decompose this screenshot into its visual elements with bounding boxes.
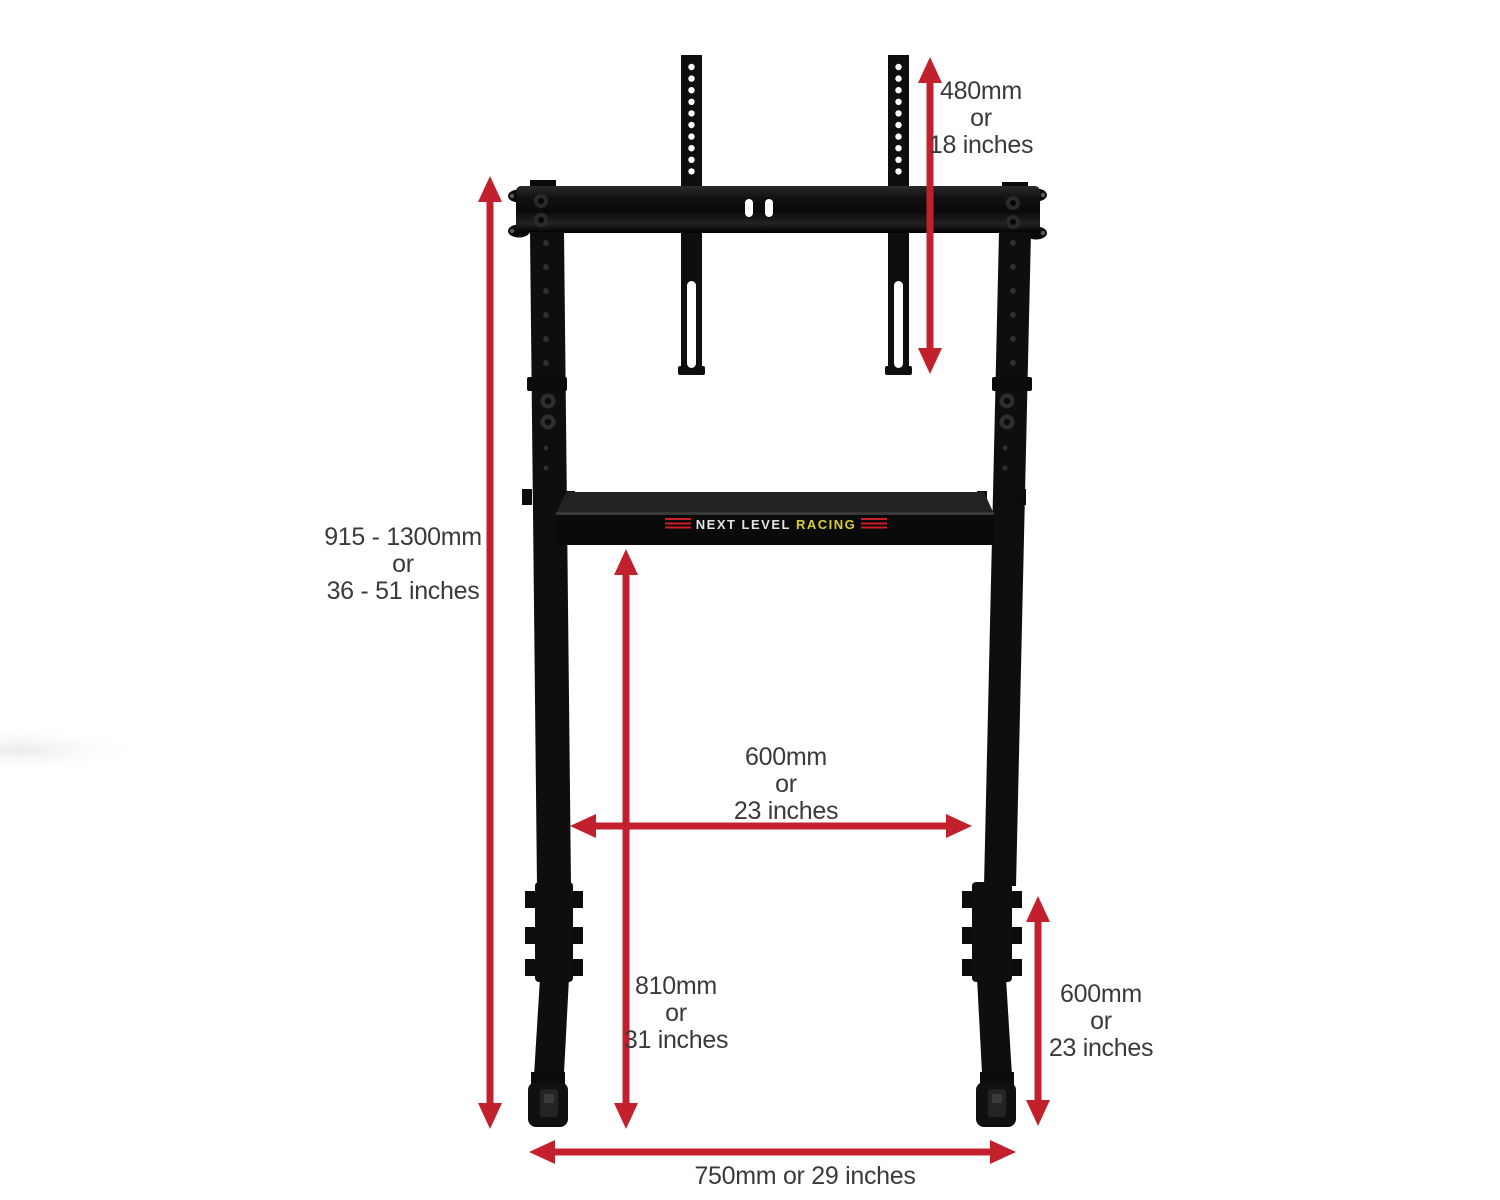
dimension-or: or (1049, 1008, 1153, 1035)
dimension-value: 600mm (734, 744, 838, 771)
dimension-value-inches: 36 - 51 inches (324, 578, 482, 605)
dimension-value: 810mm (624, 973, 728, 1000)
product-dimension-diagram: NEXT LEVEL RACING (0, 0, 1500, 1200)
dimension-label-foot-length: 600mm or 23 inches (1049, 981, 1153, 1062)
dimension-label-inner-width: 600mm or 23 inches (734, 744, 838, 825)
dimension-value-inches: 23 inches (1049, 1035, 1153, 1062)
dimension-value-inches: 31 inches (624, 1027, 728, 1054)
dimension-value-inches: 18 inches (929, 132, 1033, 159)
dimension-arrow-base-width (529, 1140, 1016, 1164)
dimension-value: 600mm (1049, 981, 1153, 1008)
dimension-label-base-width: 750mm or 29 inches (694, 1163, 915, 1190)
dimension-label-vesa-height: 480mm or 18 inches (929, 78, 1033, 159)
dimension-or: or (624, 1000, 728, 1027)
dimension-value: 480mm (929, 78, 1033, 105)
dimension-value: 750mm or 29 inches (694, 1163, 915, 1190)
dimension-arrows-overlay (0, 0, 1500, 1200)
dimension-or: or (929, 105, 1033, 132)
dimension-label-crossbar-to-floor: 810mm or 31 inches (624, 973, 728, 1054)
dimension-arrow-stand-height (478, 176, 502, 1129)
dimension-or: or (324, 551, 482, 578)
dimension-value: 915 - 1300mm (324, 524, 482, 551)
dimension-label-stand-height: 915 - 1300mm or 36 - 51 inches (324, 524, 482, 605)
dimension-value-inches: 23 inches (734, 798, 838, 825)
dimension-arrow-foot-length (1026, 896, 1050, 1126)
dimension-or: or (734, 771, 838, 798)
